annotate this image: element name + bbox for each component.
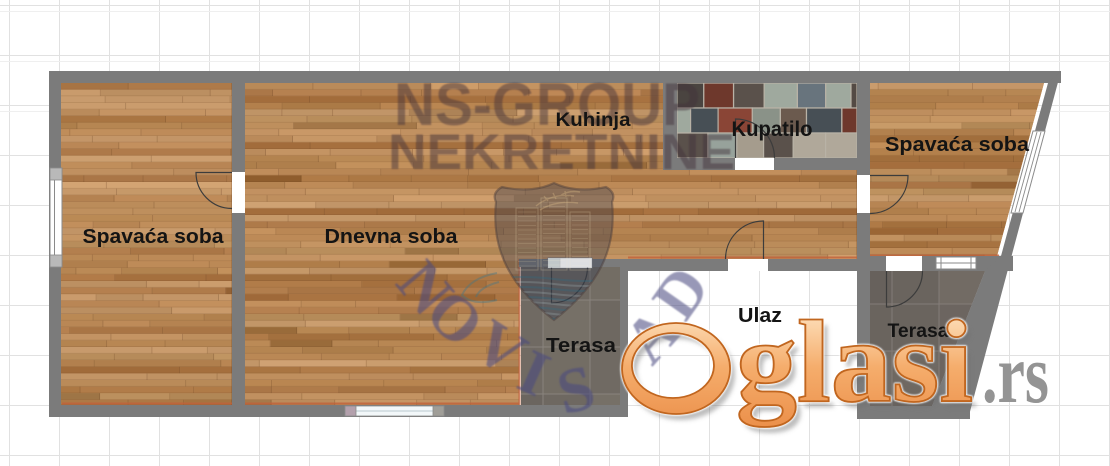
svg-text:NEKRETNINE: NEKRETNINE <box>388 124 735 180</box>
svg-text:Kupatilo: Kupatilo <box>732 118 813 141</box>
svg-text:Dnevna soba: Dnevna soba <box>325 226 459 248</box>
svg-text:.rs: .rs <box>982 328 1049 421</box>
svg-text:Spavaća soba: Spavaća soba <box>885 134 1030 156</box>
svg-text:Spavaća soba: Spavaća soba <box>83 226 225 248</box>
svg-text:Terasa: Terasa <box>546 335 617 357</box>
svg-text:Kuhinja: Kuhinja <box>556 110 631 131</box>
